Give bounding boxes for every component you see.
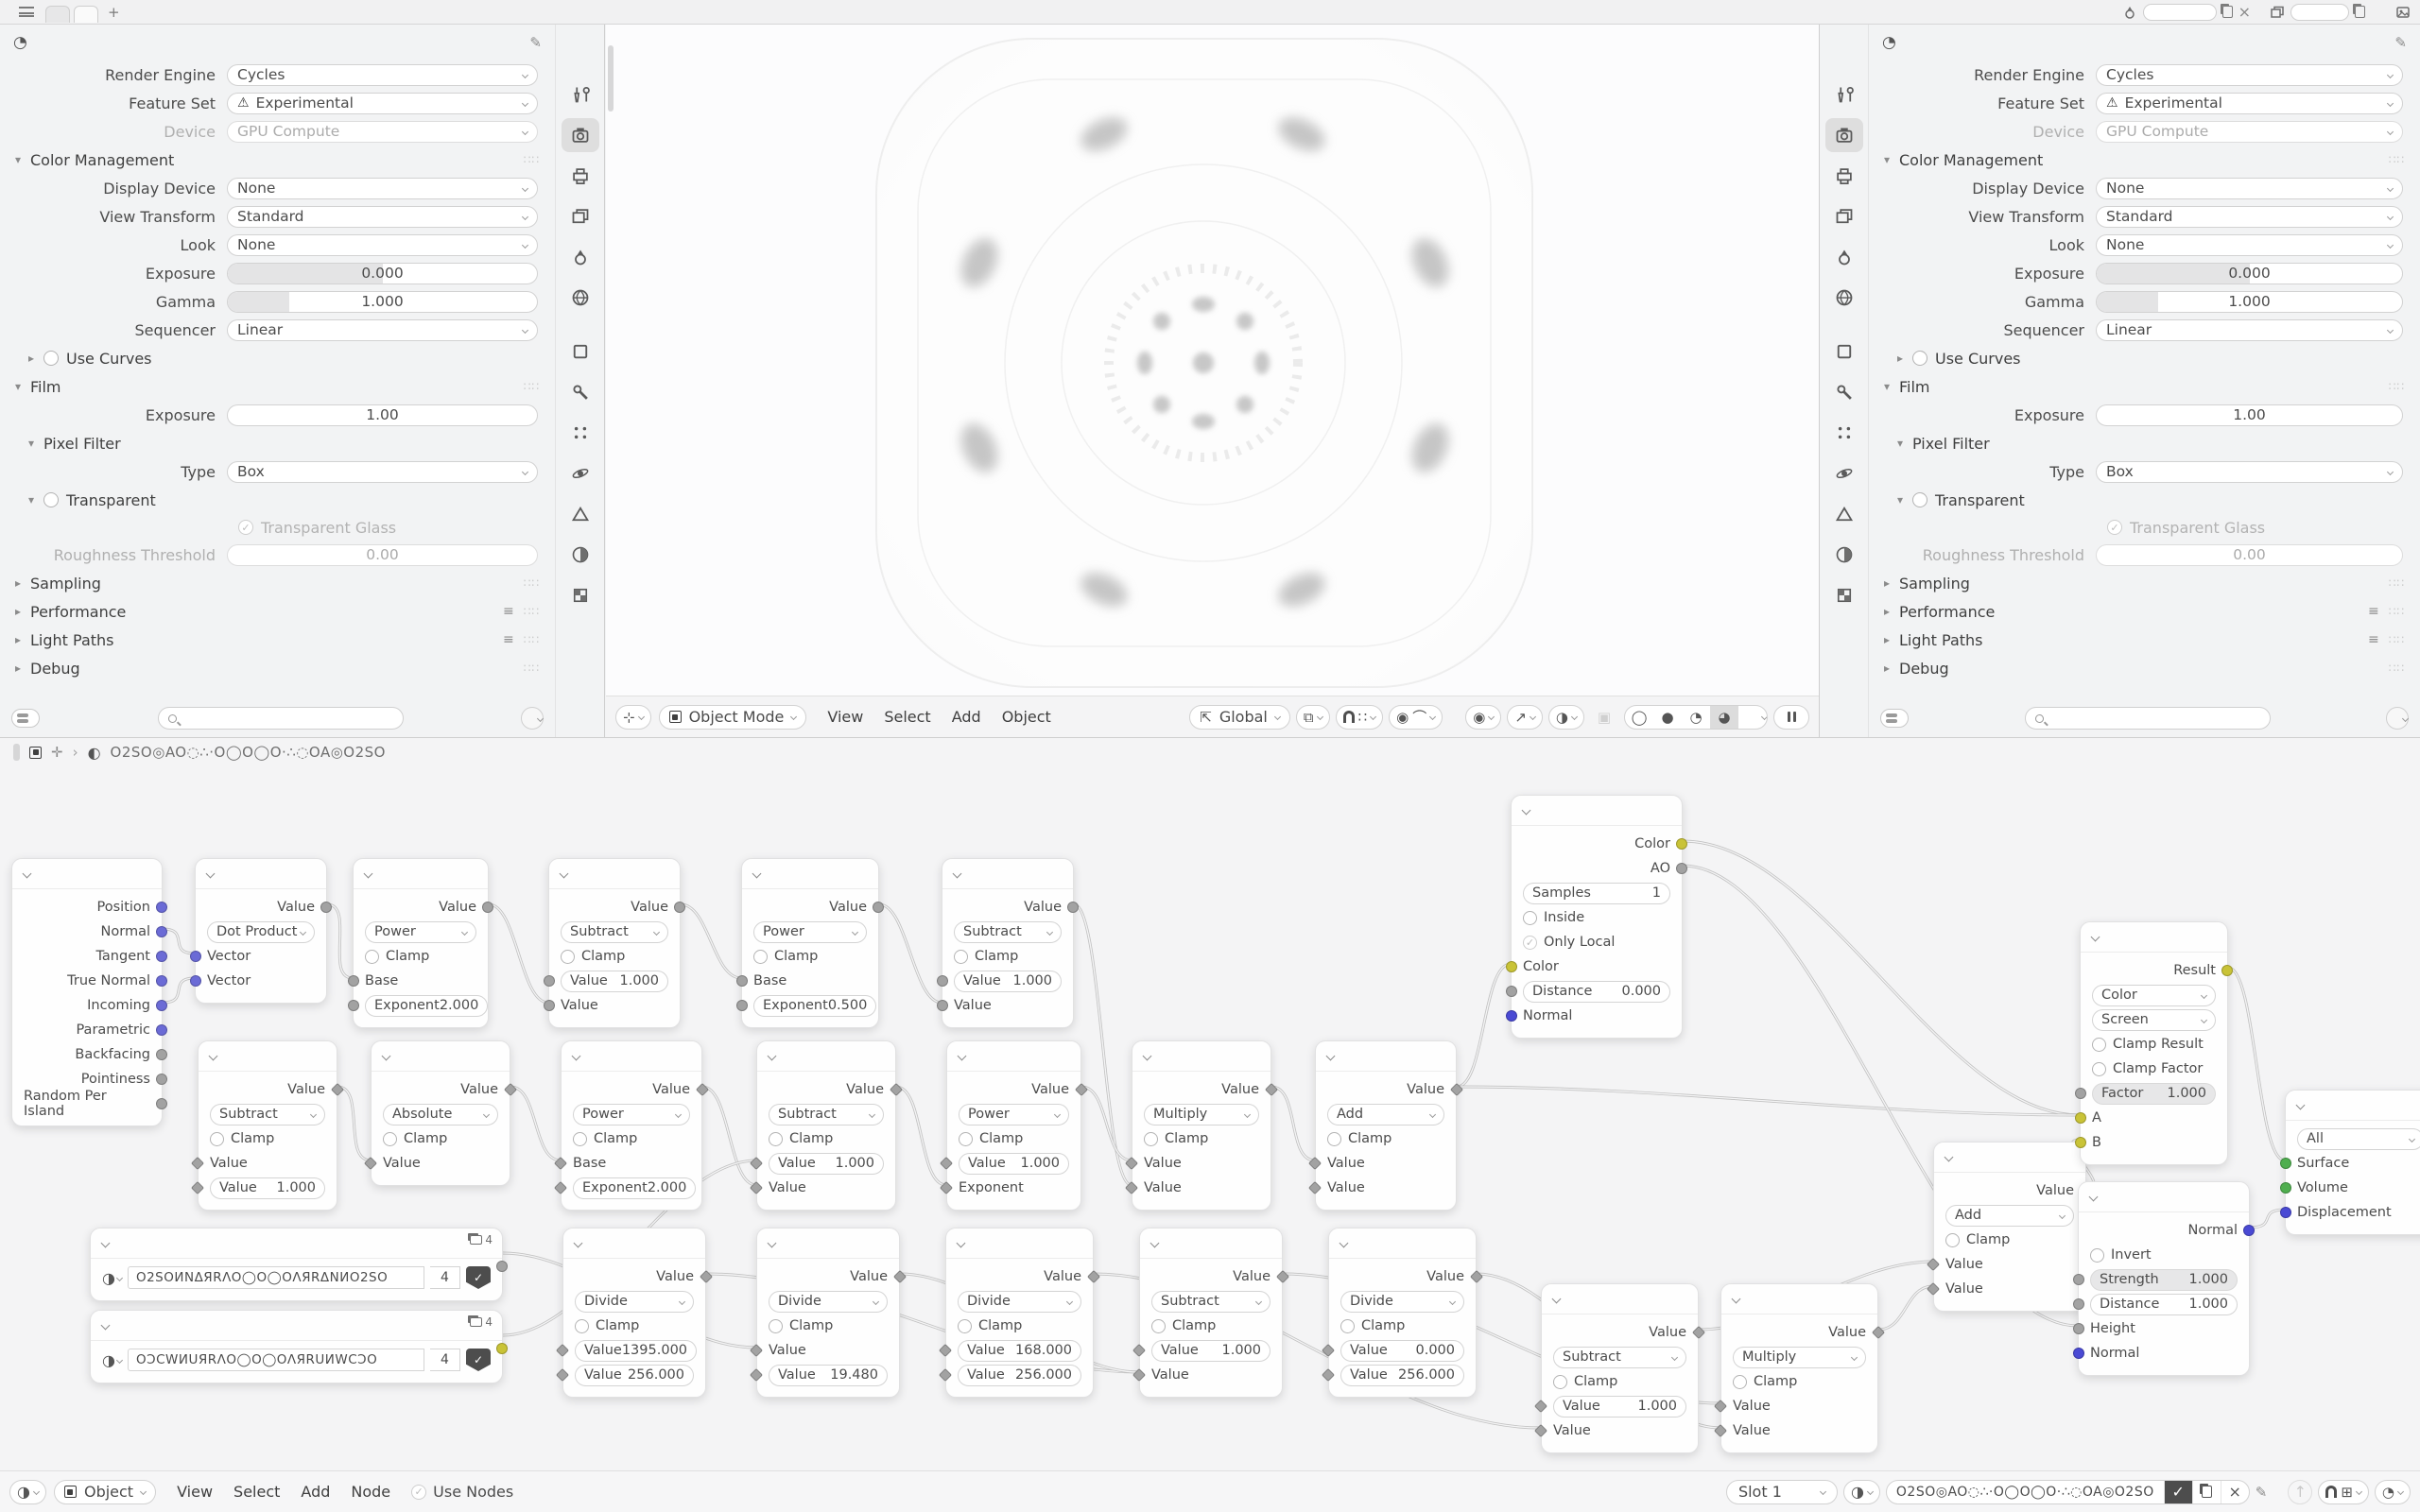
viewport-menu-select[interactable]: Select [884,708,930,726]
pin-icon[interactable]: ✎ [2394,34,2407,51]
operation-select[interactable]: Screen [2092,1009,2216,1031]
gamma-slider[interactable]: 1.000 [2096,291,2403,313]
panel-options-button[interactable] [521,707,544,730]
operation-select[interactable]: Divide [958,1291,1081,1313]
socket-vector[interactable] [156,902,167,913]
socket-gray[interactable] [674,902,685,913]
collapse-icon[interactable] [560,869,569,879]
shader-node-editor[interactable]: ✛ › ◐ O2SO◎AO◌∴·O◯O◯O·∴◌OA◎O2SO Position… [0,737,2420,1512]
checkbox-clamp[interactable]: Clamp [959,1131,1023,1146]
socket-gray[interactable] [156,1049,167,1060]
collapse-icon[interactable] [752,869,762,879]
node-absolute-b[interactable]: ValueAbsoluteClampValue [371,1040,510,1186]
node-image-1[interactable]: 4◑O2SOИNΔЯRΛO◯O◯OΛЯRΔNИO2SO4✓ [90,1228,503,1301]
socket-yellow[interactable] [1676,838,1687,850]
value-field[interactable]: Strength1.000 [2090,1269,2238,1291]
socket-gray[interactable] [937,1000,948,1011]
socket-gray[interactable] [1676,863,1687,874]
node-subtract-c[interactable]: ValueSubtractClampValue1.000Value [1139,1228,1283,1398]
socket-vector[interactable] [156,1024,167,1036]
section-pixel-filter[interactable]: ▾Pixel Filter [0,429,555,457]
properties-tab-scene[interactable] [562,240,599,274]
node-mix-color[interactable]: ResultColorScreenClamp ResultClamp Facto… [2080,921,2228,1165]
value-field[interactable]: Exponent2.000 [365,995,488,1017]
checkbox-clamp[interactable]: Clamp [1733,1374,1797,1389]
image-name-field[interactable]: OƆCWИUЯRΛO◯O◯OΛЯRUИWCƆO [128,1349,424,1371]
node-subtract-a2[interactable]: ValueSubtractClampValue1.000Value [942,858,1074,1028]
panel-options-button[interactable] [2386,707,2409,730]
node-image-2[interactable]: 4◑OƆCWИUЯRΛO◯O◯OΛЯRUИWCƆO4✓ [90,1310,503,1383]
socket-gray[interactable] [1506,986,1517,997]
socket-vector[interactable] [156,926,167,937]
socket-vector[interactable] [190,951,201,962]
socket-gray[interactable] [482,902,493,913]
collapse-icon[interactable] [957,1239,966,1248]
device-select[interactable]: GPU Compute [2096,121,2403,143]
view-layer-field[interactable] [2290,4,2349,21]
node-power-b1[interactable]: ValuePowerClampBaseExponent2.000 [561,1040,702,1211]
collapse-icon[interactable] [2296,1101,2306,1110]
checkbox-clamp[interactable]: Clamp [383,1131,447,1146]
operation-select[interactable]: Divide [769,1291,888,1313]
socket-gray[interactable] [2075,1088,2086,1099]
socket-gray[interactable] [873,902,884,913]
checkbox-clamp[interactable]: Clamp [573,1131,637,1146]
material-name[interactable]: O2SO◎AO◌∴·O◯O◯O·∴◌OA◎O2SO [1887,1485,2164,1500]
node-divide-3[interactable]: ValueDivideClampValue168.000Value256.000 [945,1228,1094,1398]
socket-gray[interactable] [736,975,748,987]
operation-select[interactable]: Divide [575,1291,694,1313]
operation-select[interactable]: Subtract [1553,1347,1686,1368]
properties-tab-physics[interactable] [1825,456,1863,490]
collapse-icon[interactable] [23,869,32,879]
collapse-icon[interactable] [1143,1052,1152,1061]
socket-gray[interactable] [937,975,948,987]
collapse-icon[interactable] [101,1321,111,1331]
operation-select[interactable]: Power [753,921,867,943]
checkbox-clamp[interactable]: Clamp [769,1131,833,1146]
editor-type-button-nodes[interactable]: ◑ [9,1480,46,1504]
properties-tab-material[interactable] [562,538,599,572]
collapse-icon[interactable] [382,1052,391,1061]
socket-gray[interactable] [348,1000,359,1011]
look-select[interactable]: None [2096,234,2403,256]
look-select[interactable]: None [227,234,538,256]
unlink-scene-button[interactable]: × [2238,3,2251,21]
section-debug[interactable]: ▸Debug∷∷ [1869,654,2420,682]
operation-select[interactable]: Add [1945,1205,2074,1227]
properties-search-input[interactable] [2025,707,2271,730]
type-select[interactable]: Box [2096,461,2403,483]
value-field[interactable]: Exponent2.000 [573,1177,696,1199]
collapse-icon[interactable] [1552,1295,1562,1304]
operation-select[interactable]: Power [959,1104,1069,1125]
checkbox-invert[interactable]: Invert [2090,1247,2152,1263]
socket-gray[interactable] [496,1261,508,1272]
view-transform-select[interactable]: Standard [227,206,538,228]
checkbox-only-local[interactable]: Only Local [1523,935,1615,950]
sequencer-select[interactable]: Linear [227,319,538,341]
socket-yellow[interactable] [496,1343,508,1354]
section-color-management[interactable]: ▾Color Management∷∷ [1869,146,2420,174]
value-field[interactable]: Exponent0.500 [753,995,876,1017]
properties-tab-modifiers[interactable] [562,375,599,409]
node-add-r[interactable]: ValueAddClampValueValue [1933,1142,2086,1312]
mode-select[interactable]: Object Mode [659,705,807,730]
properties-tab-material[interactable] [1825,538,1863,572]
render-result-icon[interactable] [2395,5,2411,20]
add-workspace-button[interactable]: + [108,4,120,21]
properties-tab-particles[interactable] [562,416,599,450]
section-checkbox[interactable] [43,492,59,507]
exposure-slider[interactable]: 0.000 [2096,263,2403,284]
node-divide-1[interactable]: ValueDivideClampValue1395.000Value256.00… [562,1228,706,1398]
section-performance[interactable]: ▸Performance≡∷∷ [1869,597,2420,626]
node-overlays-button[interactable]: ◔ [2375,1480,2411,1504]
collapse-icon[interactable] [209,1052,218,1061]
checkbox-clamp[interactable]: Clamp [1340,1318,1405,1333]
image-browse-button[interactable]: ◑ [102,1269,122,1287]
value-field[interactable]: Value1.000 [1151,1340,1270,1362]
socket-gray[interactable] [1067,902,1079,913]
value-field[interactable]: Distance1.000 [2090,1294,2238,1315]
device-select[interactable]: GPU Compute [227,121,538,143]
node-menu-add[interactable]: Add [301,1483,330,1501]
properties-tab-physics[interactable] [562,456,599,490]
checkbox-clamp[interactable]: Clamp [753,949,818,964]
gizmo-button[interactable]: ↗ [1507,705,1543,730]
render-engine-select[interactable]: Cycles [227,64,538,86]
new-view-layer-button[interactable] [2355,6,2365,18]
node-subtract-s[interactable]: ValueSubtractClampValue1.000Value [1541,1283,1699,1453]
socket-gray[interactable] [2073,1298,2084,1310]
checkbox-clamp[interactable]: Clamp [561,949,625,964]
fake-user-toggle[interactable]: ✓ [2164,1480,2192,1504]
view-transform-select[interactable]: Standard [2096,206,2403,228]
socket-blue[interactable] [2280,1207,2291,1218]
value-field[interactable]: Value256.000 [575,1365,694,1386]
socket-gray[interactable] [544,1000,555,1011]
canvas-scrollbar[interactable] [13,744,20,761]
properties-tab-viewlayer[interactable] [1825,199,1863,233]
properties-tab-render[interactable] [562,118,599,152]
viewport-menu-add[interactable]: Add [952,708,981,726]
list-icon[interactable]: ≡ [503,632,514,647]
node-snap-toggle[interactable]: ⊞ [2318,1480,2369,1504]
snap-toggle[interactable]: ∷ [1336,705,1384,730]
value-field[interactable]: Value1395.000 [575,1340,697,1362]
node-material-output[interactable]: AllSurfaceVolumeDisplacement [2285,1090,2420,1235]
operation-select[interactable]: Power [365,921,476,943]
app-menu-icon[interactable] [19,7,34,17]
socket-yellow[interactable] [1506,961,1517,972]
properties-tab-modifiers[interactable] [1825,375,1863,409]
workspace-tab-active[interactable] [74,6,98,23]
section-sampling[interactable]: ▸Sampling∷∷ [1869,569,2420,597]
socket-vector[interactable] [190,975,201,987]
node-menu-select[interactable]: Select [233,1483,280,1501]
section-performance[interactable]: ▸Performance≡∷∷ [0,597,555,626]
material-browse-button[interactable]: ◑ [1843,1480,1880,1504]
display-device-select[interactable]: None [227,178,538,199]
feature-set-select[interactable]: ⚠Experimental [2096,93,2403,114]
checkbox-clamp[interactable]: Clamp [1327,1131,1391,1146]
visibility-button[interactable]: ◉ [1465,705,1501,730]
properties-tab-render[interactable] [1825,118,1863,152]
overlays-button[interactable]: ◑ [1548,705,1584,730]
properties-tab-viewlayer[interactable] [562,199,599,233]
socket-yellow[interactable] [2075,1137,2086,1148]
exposure-slider[interactable]: 0.000 [227,263,538,284]
operation-select[interactable]: Color [2092,985,2216,1006]
filter-toggle-button[interactable] [11,709,40,728]
checkbox-clamp[interactable]: Clamp [1945,1232,2010,1247]
checkbox-clamp[interactable]: Clamp [954,949,1018,964]
roughness-threshold-field[interactable]: 0.00 [227,544,538,566]
collapse-icon[interactable] [206,869,216,879]
checkbox-clamp-factor[interactable]: Clamp Factor [2092,1061,2203,1076]
section-checkbox[interactable] [1912,492,1927,507]
socket-yellow[interactable] [2075,1112,2086,1124]
transparent-glass-toggle[interactable]: Transparent Glass [238,514,555,541]
list-icon[interactable]: ≡ [2368,632,2379,647]
properties-tab-tool[interactable] [562,77,599,112]
value-field[interactable]: Value1.000 [954,971,1062,992]
operation-select[interactable]: Subtract [769,1104,884,1125]
editor-type-button[interactable]: ⊹ [615,705,651,730]
section-transparent[interactable]: ▾Transparent [1869,486,2420,514]
socket-vector[interactable] [156,975,167,987]
viewport-3d[interactable]: ⊹ Object Mode ViewSelectAddObject ⇱ Glob… [606,25,1819,737]
value-field[interactable]: Value256.000 [958,1365,1081,1386]
shading-material-button[interactable]: ◔ [1682,705,1710,730]
checkbox-clamp[interactable]: Clamp [210,1131,274,1146]
properties-tab-texture[interactable] [562,578,599,612]
operation-select[interactable]: Absolute [383,1104,498,1125]
shading-dropdown[interactable] [1738,705,1767,730]
collapse-icon[interactable] [768,1239,777,1248]
image-user-count[interactable]: 4 [430,1266,460,1289]
node-power-a1[interactable]: ValuePowerClampBaseExponent2.000 [353,858,489,1028]
section-use-curves[interactable]: ▸Use Curves [1869,344,2420,372]
node-ambient-occlusion[interactable]: ColorAOSamples1InsideOnly LocalColorDist… [1511,795,1683,1039]
collapse-icon[interactable] [1522,806,1531,816]
properties-search-input[interactable] [158,707,404,730]
section-use-curves[interactable]: ▸Use Curves [0,344,555,372]
collapse-icon[interactable] [1732,1295,1741,1304]
operation-select[interactable]: Multiply [1733,1347,1866,1368]
node-menu-node[interactable]: Node [351,1483,390,1501]
section-debug[interactable]: ▸Debug∷∷ [0,654,555,682]
node-power-b2[interactable]: ValuePowerClampValue1.000Exponent [946,1040,1081,1211]
node-power-a2[interactable]: ValuePowerClampBaseExponent0.500 [741,858,879,1028]
properties-tab-data[interactable] [562,497,599,531]
image-name-field[interactable]: O2SOИNΔЯRΛO◯O◯OΛЯRΔNИO2SO [128,1266,424,1289]
value-field[interactable]: Value1.000 [561,971,668,992]
node-geometry[interactable]: PositionNormalTangentTrue NormalIncoming… [11,858,163,1126]
shader-type-select[interactable]: Object [54,1480,156,1504]
unlink-material-button[interactable]: × [2221,1480,2249,1504]
properties-tab-data[interactable] [1825,497,1863,531]
value-field[interactable]: Value168.000 [958,1340,1081,1362]
shading-wireframe-button[interactable]: ◯ [1625,705,1653,730]
checkbox-clamp[interactable]: Clamp [365,949,429,964]
checkbox-clamp[interactable]: Clamp [769,1318,833,1333]
image-user-count[interactable]: 4 [430,1349,460,1371]
properties-tab-object[interactable] [562,335,599,369]
sequencer-select[interactable]: Linear [2096,319,2403,341]
fake-user-shield-button[interactable]: ✓ [466,1266,491,1289]
properties-tab-texture[interactable] [1825,578,1863,612]
value-field[interactable]: Distance0.000 [1523,981,1670,1003]
socket-gray[interactable] [2073,1323,2084,1334]
operation-select[interactable]: Subtract [954,921,1062,943]
checkbox-clamp-result[interactable]: Clamp Result [2092,1037,2204,1052]
roughness-threshold-field[interactable]: 0.00 [2096,544,2403,566]
value-field[interactable]: Value1.000 [210,1177,325,1199]
section-film[interactable]: ▾Film∷∷ [1869,372,2420,401]
checkbox-clamp[interactable]: Clamp [1553,1374,1617,1389]
parent-node-tree-button[interactable]: ↑ [2288,1480,2312,1504]
shading-solid-button[interactable]: ● [1653,705,1682,730]
node-bump[interactable]: NormalInvertStrength1.000Distance1.000He… [2078,1181,2250,1376]
pause-render-button[interactable] [1773,705,1809,730]
socket-gray[interactable] [348,975,359,987]
exposure-field[interactable]: 1.00 [227,404,538,426]
operation-select[interactable]: Subtract [210,1104,325,1125]
collapse-icon[interactable] [1340,1239,1349,1248]
socket-gray[interactable] [320,902,332,913]
socket-gray[interactable] [156,1098,167,1109]
section-transparent[interactable]: ▾Transparent [0,486,555,514]
use-nodes-toggle[interactable]: Use Nodes [411,1483,513,1501]
section-film[interactable]: ▾Film∷∷ [0,372,555,401]
properties-tab-scene[interactable] [1825,240,1863,274]
node-subtract-a1[interactable]: ValueSubtractClampValue1.000Value [548,858,681,1028]
new-scene-button[interactable] [2222,6,2233,18]
transform-orientation-select[interactable]: ⇱ Global [1189,705,1290,730]
slot-select[interactable]: Slot 1 [1726,1480,1838,1504]
value-field[interactable]: Factor1.000 [2092,1083,2216,1105]
node-menu-view[interactable]: View [177,1483,213,1501]
properties-tab-object[interactable] [1825,335,1863,369]
operation-select[interactable]: Dot Product [207,921,315,943]
socket-blue[interactable] [2073,1348,2084,1359]
filter-toggle-button[interactable] [1880,709,1909,728]
socket-gray[interactable] [2073,1274,2084,1285]
value-field[interactable]: Samples1 [1523,883,1670,904]
section-light-paths[interactable]: ▸Light Paths≡∷∷ [1869,626,2420,654]
list-icon[interactable]: ≡ [503,604,514,619]
fake-user-shield-button[interactable]: ✓ [466,1349,491,1371]
value-field[interactable]: Value1.000 [1553,1396,1686,1417]
section-sampling[interactable]: ▸Sampling∷∷ [0,569,555,597]
shading-rendered-button[interactable]: ◕ [1710,705,1738,730]
image-browse-button[interactable]: ◑ [102,1351,122,1369]
properties-tab-world[interactable] [1825,281,1863,315]
collapse-icon[interactable] [1326,1052,1336,1061]
checkbox-clamp[interactable]: Clamp [958,1318,1022,1333]
gamma-slider[interactable]: 1.000 [227,291,538,313]
node-divide-2[interactable]: ValueDivideClampValueValue19.480 [756,1228,900,1398]
socket-vector[interactable] [156,1000,167,1011]
collapse-icon[interactable] [101,1239,111,1248]
socket-green[interactable] [2280,1182,2291,1194]
render-engine-select[interactable]: Cycles [2096,64,2403,86]
node-dot-product[interactable]: ValueDot ProductVectorVector [195,858,327,1004]
transparent-glass-toggle[interactable]: Transparent Glass [2107,514,2420,541]
collapse-icon[interactable] [364,869,373,879]
pin-icon[interactable]: ✎ [529,34,542,51]
checkbox-clamp[interactable]: Clamp [1144,1131,1208,1146]
list-icon[interactable]: ≡ [2368,604,2379,619]
socket-gray[interactable] [736,1000,748,1011]
viewport-menu-object[interactable]: Object [1002,708,1051,726]
properties-tab-output[interactable] [1825,159,1863,193]
feature-set-select[interactable]: ⚠Experimental [227,93,538,114]
collapse-icon[interactable] [1945,1153,1954,1162]
value-field[interactable]: Value19.480 [769,1365,888,1386]
value-field[interactable]: Value1.000 [959,1153,1069,1175]
socket-gray[interactable] [156,1074,167,1085]
collapse-icon[interactable] [1150,1239,1160,1248]
collapse-icon[interactable] [574,1239,583,1248]
collapse-icon[interactable] [953,869,962,879]
collapse-icon[interactable] [2089,1193,2099,1202]
node-subtract-b2[interactable]: ValueSubtractClampValue1.000Value [756,1040,896,1211]
operation-select[interactable]: All [2297,1128,2420,1150]
section-color-management[interactable]: ▾Color Management∷∷ [0,146,555,174]
viewport-menu-view[interactable]: View [827,708,863,726]
node-canvas[interactable]: PositionNormalTangentTrue NormalIncoming… [0,766,2420,1471]
value-field[interactable]: Value1.000 [769,1153,884,1175]
properties-tab-tool[interactable] [1825,77,1863,112]
value-field[interactable]: Value256.000 [1340,1365,1464,1386]
workspace-tab[interactable] [45,6,70,23]
section-checkbox[interactable] [1912,351,1927,366]
checkbox-clamp[interactable]: Clamp [1151,1318,1216,1333]
checkbox-clamp[interactable]: Clamp [575,1318,639,1333]
display-device-select[interactable]: None [2096,178,2403,199]
pin-icon[interactable]: ✎ [2256,1484,2268,1501]
collapse-icon[interactable] [572,1052,581,1061]
operation-select[interactable]: Add [1327,1104,1444,1125]
operation-select[interactable]: Power [573,1104,690,1125]
socket-blue[interactable] [2243,1225,2255,1236]
snap-target-button[interactable]: ⧉ [1296,705,1330,730]
xray-toggle[interactable]: ▣ [1590,705,1618,730]
node-divide-4[interactable]: ValueDivideClampValue0.000Value256.000 [1328,1228,1477,1398]
section-checkbox[interactable] [43,351,59,366]
node-multiply-b[interactable]: ValueMultiplyClampValueValue [1132,1040,1271,1211]
checkbox-inside[interactable]: Inside [1523,910,1584,925]
viewport-scrollbar[interactable] [608,45,614,112]
exposure-field[interactable]: 1.00 [2096,404,2403,426]
type-select[interactable]: Box [227,461,538,483]
socket-blue[interactable] [1506,1010,1517,1022]
properties-tab-world[interactable] [562,281,599,315]
collapse-icon[interactable] [958,1052,967,1061]
node-multiply-s[interactable]: ValueMultiplyClampValueValue [1720,1283,1878,1453]
operation-select[interactable]: Multiply [1144,1104,1259,1125]
socket-gray[interactable] [544,975,555,987]
socket-vector[interactable] [156,951,167,962]
node-subtract-b1[interactable]: ValueSubtractClampValueValue1.000 [198,1040,337,1211]
properties-tab-output[interactable] [562,159,599,193]
socket-green[interactable] [2280,1158,2291,1169]
proportional-edit-button[interactable]: ◉⌒ [1389,705,1443,730]
collapse-icon[interactable] [2091,933,2100,942]
